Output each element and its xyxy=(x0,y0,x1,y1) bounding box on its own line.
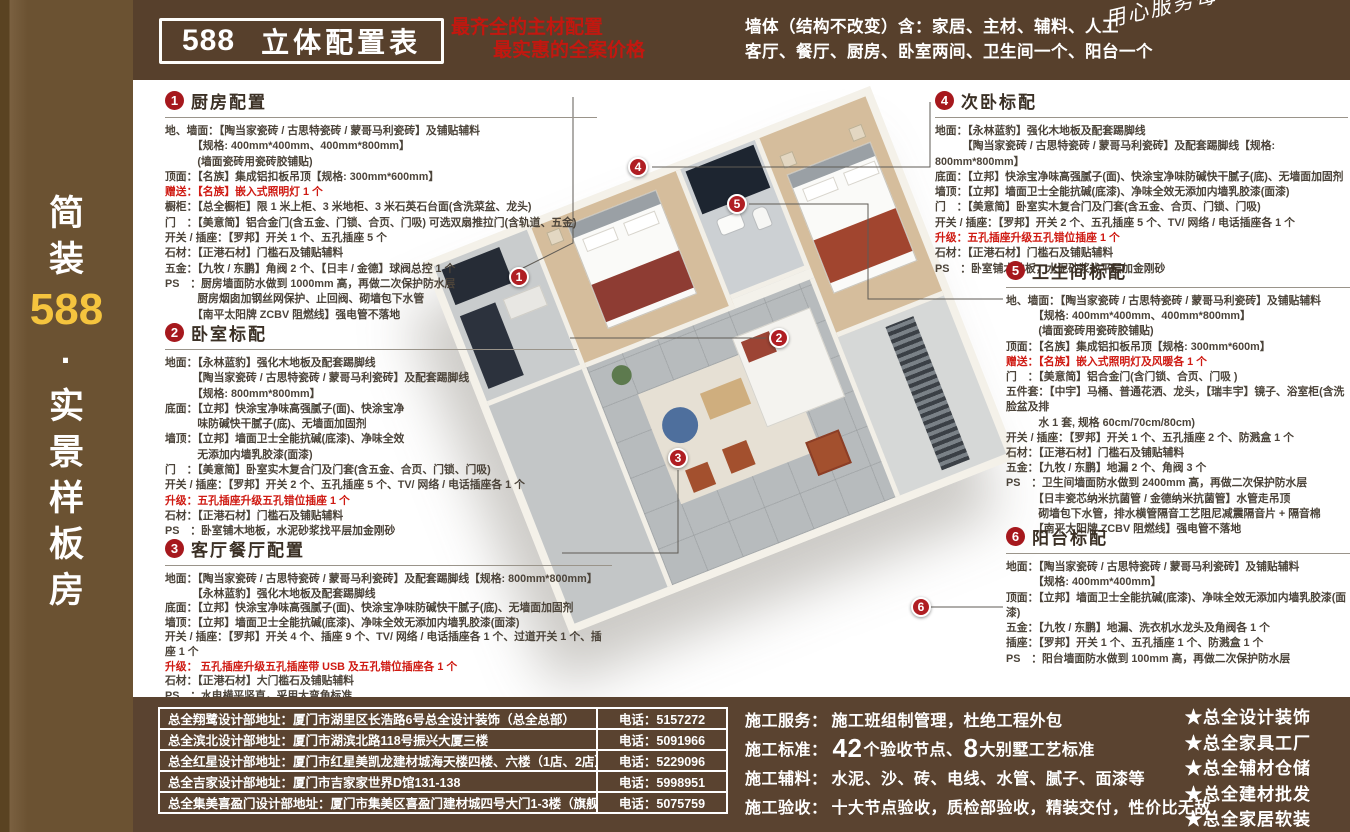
nightstand xyxy=(848,124,866,142)
promo-white-line2: 客厅、餐厅、厨房、卧室两间、卫生间一个、阳台一个 xyxy=(745,40,1153,65)
section-header: 5 卫生间标配 xyxy=(1006,258,1350,288)
config-line: 味防碱快干腻子(底)、无墙面加固剂 xyxy=(165,417,577,432)
construction-services: 施工服务： 施工班组制管理，杜绝工程外包 施工标准： 42 个验收节点、 8 大… xyxy=(745,704,1211,820)
banner-char: 房 xyxy=(49,573,84,608)
section-lines: 地面：【陶当家瓷砖 / 古思特瓷砖 / 蒙哥马利瓷砖】及配套踢脚线【规格: 80… xyxy=(165,572,612,703)
config-line: 砌墙包下水管，排水横管隔音工艺阻尼减震隔音片 + 隔音棉 xyxy=(1006,507,1350,522)
banner-char: · xyxy=(61,343,73,378)
section-number-badge: 2 xyxy=(165,323,184,342)
brand-star-item: ★总全辅材仓储 xyxy=(1185,754,1311,780)
config-line: 厨房烟囱加钢丝网保护、止回阀、砌墙包下水管 xyxy=(165,292,597,307)
config-line: 墙顶：【立邦】墙面卫士全能抗碱(底漆)、净味全效 xyxy=(165,432,577,447)
section-lines: 地面：【永林蓝豹】强化木地板及配套踢脚线 【陶当家瓷砖 / 古思特瓷砖 / 蒙哥… xyxy=(935,124,1348,277)
service-row: 施工辅料： 水泥、沙、砖、电线、水管、腻子、面漆等 xyxy=(745,762,1211,791)
location-row: 总全红星设计部地址：厦门市红星美凯龙建材城海天楼四楼、六楼（1店、2店） 电话：… xyxy=(158,749,728,772)
config-line: 开关 / 插座：【罗邦】开关 2 个、五孔插座 5 个、TV/ 网络 / 电话插… xyxy=(935,216,1348,231)
bed xyxy=(787,142,918,294)
section-second-bedroom: 4 次卧标配 地面：【永林蓝豹】强化木地板及配套踢脚线 【陶当家瓷砖 / 古思特… xyxy=(935,88,1348,277)
promo-red-text: 最齐全的主材配置 最实惠的全案价格 xyxy=(451,16,645,62)
config-line: 墙顶：【立邦】墙面卫士全能抗碱(底漆)、净味全效无添加内墙乳胶漆(面漆) xyxy=(165,616,612,631)
brand-star-list: ★总全设计装饰 ★总全家具工厂 ★总全辅材仓储 ★总全建材批发 ★总全家居软装 xyxy=(1185,703,1311,831)
config-line: 底面：【立邦】快涂宝净味高强腻子(面)、快涂宝净 xyxy=(165,402,577,417)
config-line: 赠送：【名族】嵌入式照明灯及风暖各 1 个 xyxy=(1006,355,1350,370)
config-line: 开关 / 插座：【罗邦】开关 4 个、插座 9 个、TV/ 网络 / 电话插座各… xyxy=(165,630,612,659)
left-banner: 简 装 588 · 实 景 样 板 房 xyxy=(0,0,133,832)
section-title: 阳台标配 xyxy=(1032,524,1108,549)
config-line: 顶面：【立邦】墙面卫士全能抗碱(底漆)、净味全效无添加内墙乳胶漆(面漆) xyxy=(1006,591,1350,622)
section-number-badge: 1 xyxy=(165,91,184,110)
config-line: 门 ：【美意简】卧室实木复合门及门套(含五金、合页、门锁、门吸) xyxy=(165,463,577,478)
package-number: 588 xyxy=(182,24,235,58)
service-row: 施工验收： 十大节点验收，质检部验收，精装交付，性价比无敌 xyxy=(745,791,1211,820)
config-line: 顶面：【名族】集成铝扣板吊顶【规格: 300mm*600mm】 xyxy=(165,170,597,185)
package-title: 立体配置表 xyxy=(261,21,421,61)
section-lines: 地面：【永林蓝豹】强化木地板及配套踢脚线 【陶当家瓷砖 / 古思特瓷砖 / 蒙哥… xyxy=(165,356,577,540)
config-line: 【陶当家瓷砖 / 古思特瓷砖 / 蒙哥马利瓷砖】及配套踢脚线【规格: 800mm… xyxy=(935,139,1348,170)
config-line: 五金：【九牧 / 东鹏】角阀 2 个、【日丰 / 金德】球阀总控 1 个 xyxy=(165,262,597,277)
room-marker: 2 xyxy=(769,328,789,348)
config-line: 门 ：【美意简】铝合金门(含五金、门锁、合页、门吸) 可选双扇推拉门(含轨道、五… xyxy=(165,216,597,231)
config-line: PS ：卫生间墙面防水做到 2400mm 高，再做二次保护防水层 xyxy=(1006,476,1350,491)
section-lines: 地面：【陶当家瓷砖 / 古思特瓷砖 / 蒙哥马利瓷砖】及铺贴辅料 【规格: 40… xyxy=(1006,560,1350,667)
location-phone: 电话：5157272 xyxy=(596,709,726,728)
service-label: 施工辅料： xyxy=(745,765,828,789)
location-row: 总全集美喜盈门设计部地址：厦门市集美区喜盈门建材城四号大门1-3楼（旗舰店） 电… xyxy=(158,791,728,814)
section-living-dining: 3 客厅餐厅配置 地面：【陶当家瓷砖 / 古思特瓷砖 / 蒙哥马利瓷砖】及配套踢… xyxy=(165,536,612,703)
promo-red-line1: 最齐全的主材配置 xyxy=(451,16,645,39)
config-line: 【陶当家瓷砖 / 古思特瓷砖 / 蒙哥马利瓷砖】及配套踢脚线 xyxy=(165,371,577,386)
service-text: 大别墅工艺标准 xyxy=(979,736,1095,760)
room-marker: 4 xyxy=(628,157,648,177)
section-number-badge: 3 xyxy=(165,539,184,558)
service-text: 水泥、沙、砖、电线、水管、腻子、面漆等 xyxy=(832,765,1146,789)
config-line: 【永林蓝豹】强化木地板及配套踢脚线 xyxy=(165,587,612,602)
bed-blanket xyxy=(592,250,694,322)
config-line: 【日丰瓷芯纳米抗菌管 / 金德纳米抗菌管】水管走吊顶 xyxy=(1006,492,1350,507)
location-row: 总全翔鹭设计部地址：厦门市湖里区长浩路6号总全设计装饰（总全总部） 电话：515… xyxy=(158,707,728,730)
banner-char: 板 xyxy=(49,527,84,562)
footer-band: 总全翔鹭设计部地址：厦门市湖里区长浩路6号总全设计装饰（总全总部） 电话：515… xyxy=(133,697,1350,832)
room-marker: 5 xyxy=(727,194,747,214)
promo-white-text: 墙体（结构不改变）含：家居、主材、辅料、人工 客厅、餐厅、厨房、卧室两间、卫生间… xyxy=(745,15,1153,65)
section-header: 2 卧室标配 xyxy=(165,320,577,350)
section-title: 客厅餐厅配置 xyxy=(191,536,305,561)
config-line: 石材：【正港石材】门槛石及铺贴辅料 xyxy=(165,509,577,524)
config-line: 地、墙面：【陶当家瓷砖 / 古思特瓷砖 / 蒙哥马利瓷砖】及铺贴辅料 xyxy=(165,124,597,139)
location-phone: 电话：5091966 xyxy=(596,730,726,749)
config-line: 开关 / 插座：【罗邦】开关 1 个、五孔插座 2 个、防溅盒 1 个 xyxy=(1006,431,1350,446)
service-text: 十大节点验收，质检部验收，精装交付，性价比无敌 xyxy=(832,794,1212,818)
section-number-badge: 4 xyxy=(935,91,954,110)
section-title: 次卧标配 xyxy=(961,88,1037,113)
room-marker: 3 xyxy=(668,448,688,468)
service-label: 施工标准： xyxy=(745,736,828,760)
config-line: 门 ：【美意简】卧室实木复合门及门套(含五金、合页、门锁、门吸) xyxy=(935,200,1348,215)
brand-star-item: ★总全设计装饰 xyxy=(1185,703,1311,729)
brand-star-item: ★总全家具工厂 xyxy=(1185,729,1311,755)
config-line: 石材：【正港石材】门槛石及铺贴辅料 xyxy=(165,246,597,261)
section-title: 卧室标配 xyxy=(191,320,267,345)
section-header: 3 客厅餐厅配置 xyxy=(165,536,612,566)
section-lines: 地、墙面：【陶当家瓷砖 / 古思特瓷砖 / 蒙哥马利瓷砖】及铺贴辅料 【规格: … xyxy=(1006,294,1350,537)
banner-char: 实 xyxy=(49,389,84,424)
location-address: 总全红星设计部地址：厦门市红星美凯龙建材城海天楼四楼、六楼（1店、2店） xyxy=(160,751,596,770)
bathroom-sink xyxy=(715,210,746,236)
bed-blanket xyxy=(814,208,913,283)
banner-char: 588 xyxy=(30,288,103,332)
config-line: 石材：【正港石材】门槛石及铺贴辅料 xyxy=(1006,446,1350,461)
config-line: 地、墙面：【陶当家瓷砖 / 古思特瓷砖 / 蒙哥马利瓷砖】及铺贴辅料 xyxy=(1006,294,1350,309)
plant xyxy=(609,362,635,388)
location-row: 总全滨北设计部地址：厦门市湖滨北路118号振兴大厦三楼 电话：5091966 xyxy=(158,728,728,751)
config-line: 赠送：【名族】嵌入式照明灯 1 个 xyxy=(165,185,597,200)
config-line: 插座：【罗邦】开关 1 个、五孔插座 1 个、防溅盒 1 个 xyxy=(1006,636,1350,651)
banner-char: 装 xyxy=(49,242,84,277)
config-line: 升级： 五孔插座升级五孔插座带 USB 及五孔错位插座各 1 个 xyxy=(165,660,612,675)
service-text: 个验收节点、 xyxy=(863,736,962,760)
banner-char: 景 xyxy=(49,435,84,470)
brand-star-item: ★总全家居软装 xyxy=(1185,805,1311,831)
service-big-number: 8 xyxy=(963,735,978,761)
config-line: 【规格: 400mm*400mm】 xyxy=(1006,575,1350,590)
service-big-number: 42 xyxy=(833,735,863,761)
banner-char: 样 xyxy=(49,481,84,516)
locations-table: 总全翔鹭设计部地址：厦门市湖里区长浩路6号总全设计装饰（总全总部） 电话：515… xyxy=(158,709,728,814)
section-number-badge: 6 xyxy=(1006,527,1025,546)
config-line: 石材：【正港石材】大门槛石及铺贴辅料 xyxy=(165,674,612,689)
config-line: PS ：阳台墙面防水做到 100mm 高，再做二次保护防水层 xyxy=(1006,652,1350,667)
section-bedroom: 2 卧室标配 地面：【永林蓝豹】强化木地板及配套踢脚线 【陶当家瓷砖 / 古思特… xyxy=(165,320,577,540)
config-line: 升级：五孔插座升级五孔错位插座 1 个 xyxy=(165,494,577,509)
config-line: 水 1 套, 规格 60cm/70cm/80cm) xyxy=(1006,416,1350,431)
config-line: 地面：【永林蓝豹】强化木地板及配套踢脚线 xyxy=(165,356,577,371)
service-label: 施工验收： xyxy=(745,794,828,818)
nightstand xyxy=(779,151,797,169)
config-line: 五金：【九牧 / 东鹏】地漏、洗衣机水龙头及角阀各 1 个 xyxy=(1006,621,1350,636)
section-title: 厨房配置 xyxy=(191,88,267,113)
service-row: 施工标准： 42 个验收节点、 8 大别墅工艺标准 xyxy=(745,733,1211,762)
balcony-radiator xyxy=(885,316,969,470)
location-row: 总全吉家设计部地址：厦门市吉家家世界D馆131-138 电话：5998951 xyxy=(158,770,728,793)
section-balcony: 6 阳台标配 地面：【陶当家瓷砖 / 古思特瓷砖 / 蒙哥马利瓷砖】及铺贴辅料 … xyxy=(1006,524,1350,667)
location-address: 总全滨北设计部地址：厦门市湖滨北路118号振兴大厦三楼 xyxy=(160,730,596,749)
config-line: (墙面瓷砖用瓷砖胶铺贴) xyxy=(165,155,597,170)
service-text: 施工班组制管理，杜绝工程外包 xyxy=(832,707,1063,731)
config-line: (墙面瓷砖用瓷砖胶铺贴) xyxy=(1006,324,1350,339)
room-marker: 6 xyxy=(911,597,931,617)
config-line: 无添加内墙乳胶漆(面漆) xyxy=(165,448,577,463)
section-header: 6 阳台标配 xyxy=(1006,524,1350,554)
location-address: 总全集美喜盈门设计部地址：厦门市集美区喜盈门建材城四号大门1-3楼（旗舰店） xyxy=(160,793,596,812)
brand-star-item: ★总全建材批发 xyxy=(1185,780,1311,806)
config-line: 升级：五孔插座升级五孔错位插座 1 个 xyxy=(935,231,1348,246)
package-badge: 588 立体配置表 xyxy=(159,18,444,64)
section-lines: 地、墙面：【陶当家瓷砖 / 古思特瓷砖 / 蒙哥马利瓷砖】及铺贴辅料 【规格: … xyxy=(165,124,597,323)
service-label: 施工服务： xyxy=(745,707,828,731)
location-address: 总全翔鹭设计部地址：厦门市湖里区长浩路6号总全设计装饰（总全总部） xyxy=(160,709,596,728)
section-number-badge: 5 xyxy=(1006,261,1025,280)
section-kitchen: 1 厨房配置 地、墙面：【陶当家瓷砖 / 古思特瓷砖 / 蒙哥马利瓷砖】及铺贴辅… xyxy=(165,88,597,323)
header-band: 588 立体配置表 最齐全的主材配置 最实惠的全案价格 墙体（结构不改变）含：家… xyxy=(133,0,1350,80)
config-line: 开关 / 插座：【罗邦】开关 1 个、五孔插座 5 个 xyxy=(165,231,597,246)
config-line: 【规格: 400mm*400mm、400mm*800mm】 xyxy=(165,139,597,154)
promo-red-line2: 最实惠的全案价格 xyxy=(493,39,645,62)
banner-char: 简 xyxy=(49,196,84,231)
config-line: 五金：【九牧 / 东鹏】地漏 2 个、角阀 3 个 xyxy=(1006,461,1350,476)
config-line: PS ：厨房墙面防水做到 1000mm 高，再做二次保护防水层 xyxy=(165,277,597,292)
config-line: 顶面：【名族】集成铝扣板吊顶【规格: 300mm*600m】 xyxy=(1006,340,1350,355)
config-line: 地面：【永林蓝豹】强化木地板及配套踢脚线 xyxy=(935,124,1348,139)
section-header: 4 次卧标配 xyxy=(935,88,1348,118)
section-bathroom: 5 卫生间标配 地、墙面：【陶当家瓷砖 / 古思特瓷砖 / 蒙哥马利瓷砖】及铺贴… xyxy=(1006,258,1350,537)
banner-vertical-text: 简 装 588 · 实 景 样 板 房 xyxy=(0,196,133,608)
config-line: 开关 / 插座：【罗邦】开关 2 个、五孔插座 5 个、TV/ 网络 / 电话插… xyxy=(165,478,577,493)
location-phone: 电话：5075759 xyxy=(596,793,726,812)
config-line: 底面：【立邦】快涂宝净味高强腻子(面)、快涂宝净味防碱快干腻子(底)、无墙面加固… xyxy=(165,601,612,616)
section-title: 卫生间标配 xyxy=(1032,258,1127,283)
config-line: 底面：【立邦】快涂宝净味高强腻子(面)、快涂宝净味防碱快干腻子(底)、无墙面加固… xyxy=(935,170,1348,185)
location-phone: 电话：5998951 xyxy=(596,772,726,791)
promo-white-line1: 墙体（结构不改变）含：家居、主材、辅料、人工 xyxy=(745,15,1153,40)
config-line: 门 ：【美意简】铝合金门(含门锁、合页、门吸 ) xyxy=(1006,370,1350,385)
config-line: 墙顶：【立邦】墙面卫士全能抗碱(底漆)、净味全效无添加内墙乳胶漆(面漆) xyxy=(935,185,1348,200)
location-address: 总全吉家设计部地址：厦门市吉家家世界D馆131-138 xyxy=(160,772,596,791)
toilet xyxy=(750,205,773,231)
config-line: 橱柜：【总全橱柜】限 1 米上柜、3 米地柜、3 米石英石台面(含洗菜盆、龙头) xyxy=(165,200,597,215)
config-line: 【规格: 800mm*800mm】 xyxy=(165,387,577,402)
config-line: 五件套：【中宇】马桶、普通花洒、龙头，【瑞丰宇】镜子、浴室柜(含洗脸盆及排 xyxy=(1006,385,1350,415)
service-row: 施工服务： 施工班组制管理，杜绝工程外包 xyxy=(745,704,1211,733)
config-line: 地面：【陶当家瓷砖 / 古思特瓷砖 / 蒙哥马利瓷砖】及配套踢脚线【规格: 80… xyxy=(165,572,612,587)
config-line: 【规格: 400mm*400mm、400mm*800mm】 xyxy=(1006,309,1350,324)
section-header: 1 厨房配置 xyxy=(165,88,597,118)
config-line: 地面：【陶当家瓷砖 / 古思特瓷砖 / 蒙哥马利瓷砖】及铺贴辅料 xyxy=(1006,560,1350,575)
location-phone: 电话：5229096 xyxy=(596,751,726,770)
